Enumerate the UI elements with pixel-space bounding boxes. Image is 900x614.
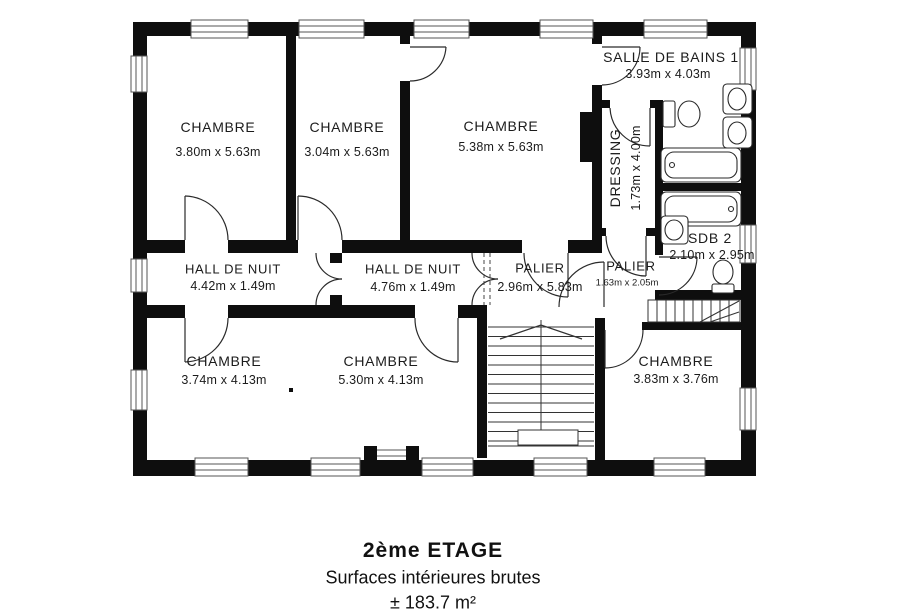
label-chambre-nw-dims: 3.80m x 5.63m	[175, 145, 260, 159]
label-chambre-se-dims: 3.83m x 3.76m	[633, 372, 718, 386]
label-palier-main-name: PALIER	[515, 261, 564, 276]
double-door-hall-to-palier	[472, 253, 498, 305]
balcony-door-recess	[377, 450, 406, 456]
door-chambre-n-to-ne	[410, 47, 446, 81]
label-salle-de-bains-name: SALLE DE BAINS 1	[603, 49, 739, 65]
label-chambre-s-name: CHAMBRE	[344, 353, 419, 369]
door-chambre-nw	[185, 196, 228, 240]
walls	[133, 22, 756, 476]
doors	[185, 47, 697, 368]
sink-sdb1-lower	[723, 117, 752, 148]
label-chambre-ne-name: CHAMBRE	[464, 118, 539, 134]
label-chambre-n-name: CHAMBRE	[310, 119, 385, 135]
floor-subtitle: Surfaces intérieures brutes	[325, 568, 540, 589]
door-chambre-se	[605, 330, 643, 368]
opening-dashed	[484, 253, 490, 305]
door-sdb2	[659, 257, 697, 295]
sink-sdb1-upper	[723, 84, 752, 114]
label-chambre-sw-dims: 3.74m x 4.13m	[181, 373, 266, 387]
staircase-upper-flight	[648, 300, 740, 322]
label-chambre-s-dims: 5.30m x 4.13m	[338, 373, 423, 387]
label-dressing-dims: 1.73m x 4.00m	[629, 125, 643, 210]
floor-plan-page: CHAMBRE 3.80m x 5.63m CHAMBRE 3.04m x 5.…	[0, 0, 900, 600]
label-sdb2-dims: 2.10m x 2.95m	[669, 248, 754, 262]
toilet-sdb1	[663, 101, 700, 127]
label-palier-main-dims: 2.96m x 5.83m	[497, 280, 582, 294]
label-chambre-nw-name: CHAMBRE	[181, 119, 256, 135]
door-chambre-n	[298, 196, 342, 240]
label-chambre-ne-dims: 5.38m x 5.63m	[458, 140, 543, 154]
label-palier-small-name: PALIER	[606, 259, 655, 274]
label-chambre-n-dims: 3.04m x 5.63m	[304, 145, 389, 159]
label-sdb2-name: SDB 2	[688, 230, 732, 246]
sink-sdb2	[661, 216, 688, 244]
staircase-main	[488, 320, 594, 446]
label-palier-small-dims: 1.63m x 2.05m	[596, 278, 659, 289]
floor-plan-drawing	[0, 0, 900, 600]
door-chambre-s	[415, 318, 458, 362]
label-salle-de-bains-dims: 3.93m x 4.03m	[625, 67, 710, 81]
label-dressing-name: DRESSING	[607, 129, 623, 208]
label-hall-east-dims: 4.76m x 1.49m	[370, 280, 455, 294]
floor-title: 2ème ETAGE	[363, 539, 503, 563]
label-hall-west-name: HALL DE NUIT	[185, 262, 281, 277]
label-chambre-se-name: CHAMBRE	[639, 353, 714, 369]
floor-area: ± 183.7 m²	[390, 593, 476, 614]
label-chambre-sw-name: CHAMBRE	[187, 353, 262, 369]
label-hall-west-dims: 4.42m x 1.49m	[190, 279, 275, 293]
label-hall-east-name: HALL DE NUIT	[365, 262, 461, 277]
bathtub-sdb1	[661, 148, 741, 182]
toilet-sdb2	[712, 260, 734, 293]
